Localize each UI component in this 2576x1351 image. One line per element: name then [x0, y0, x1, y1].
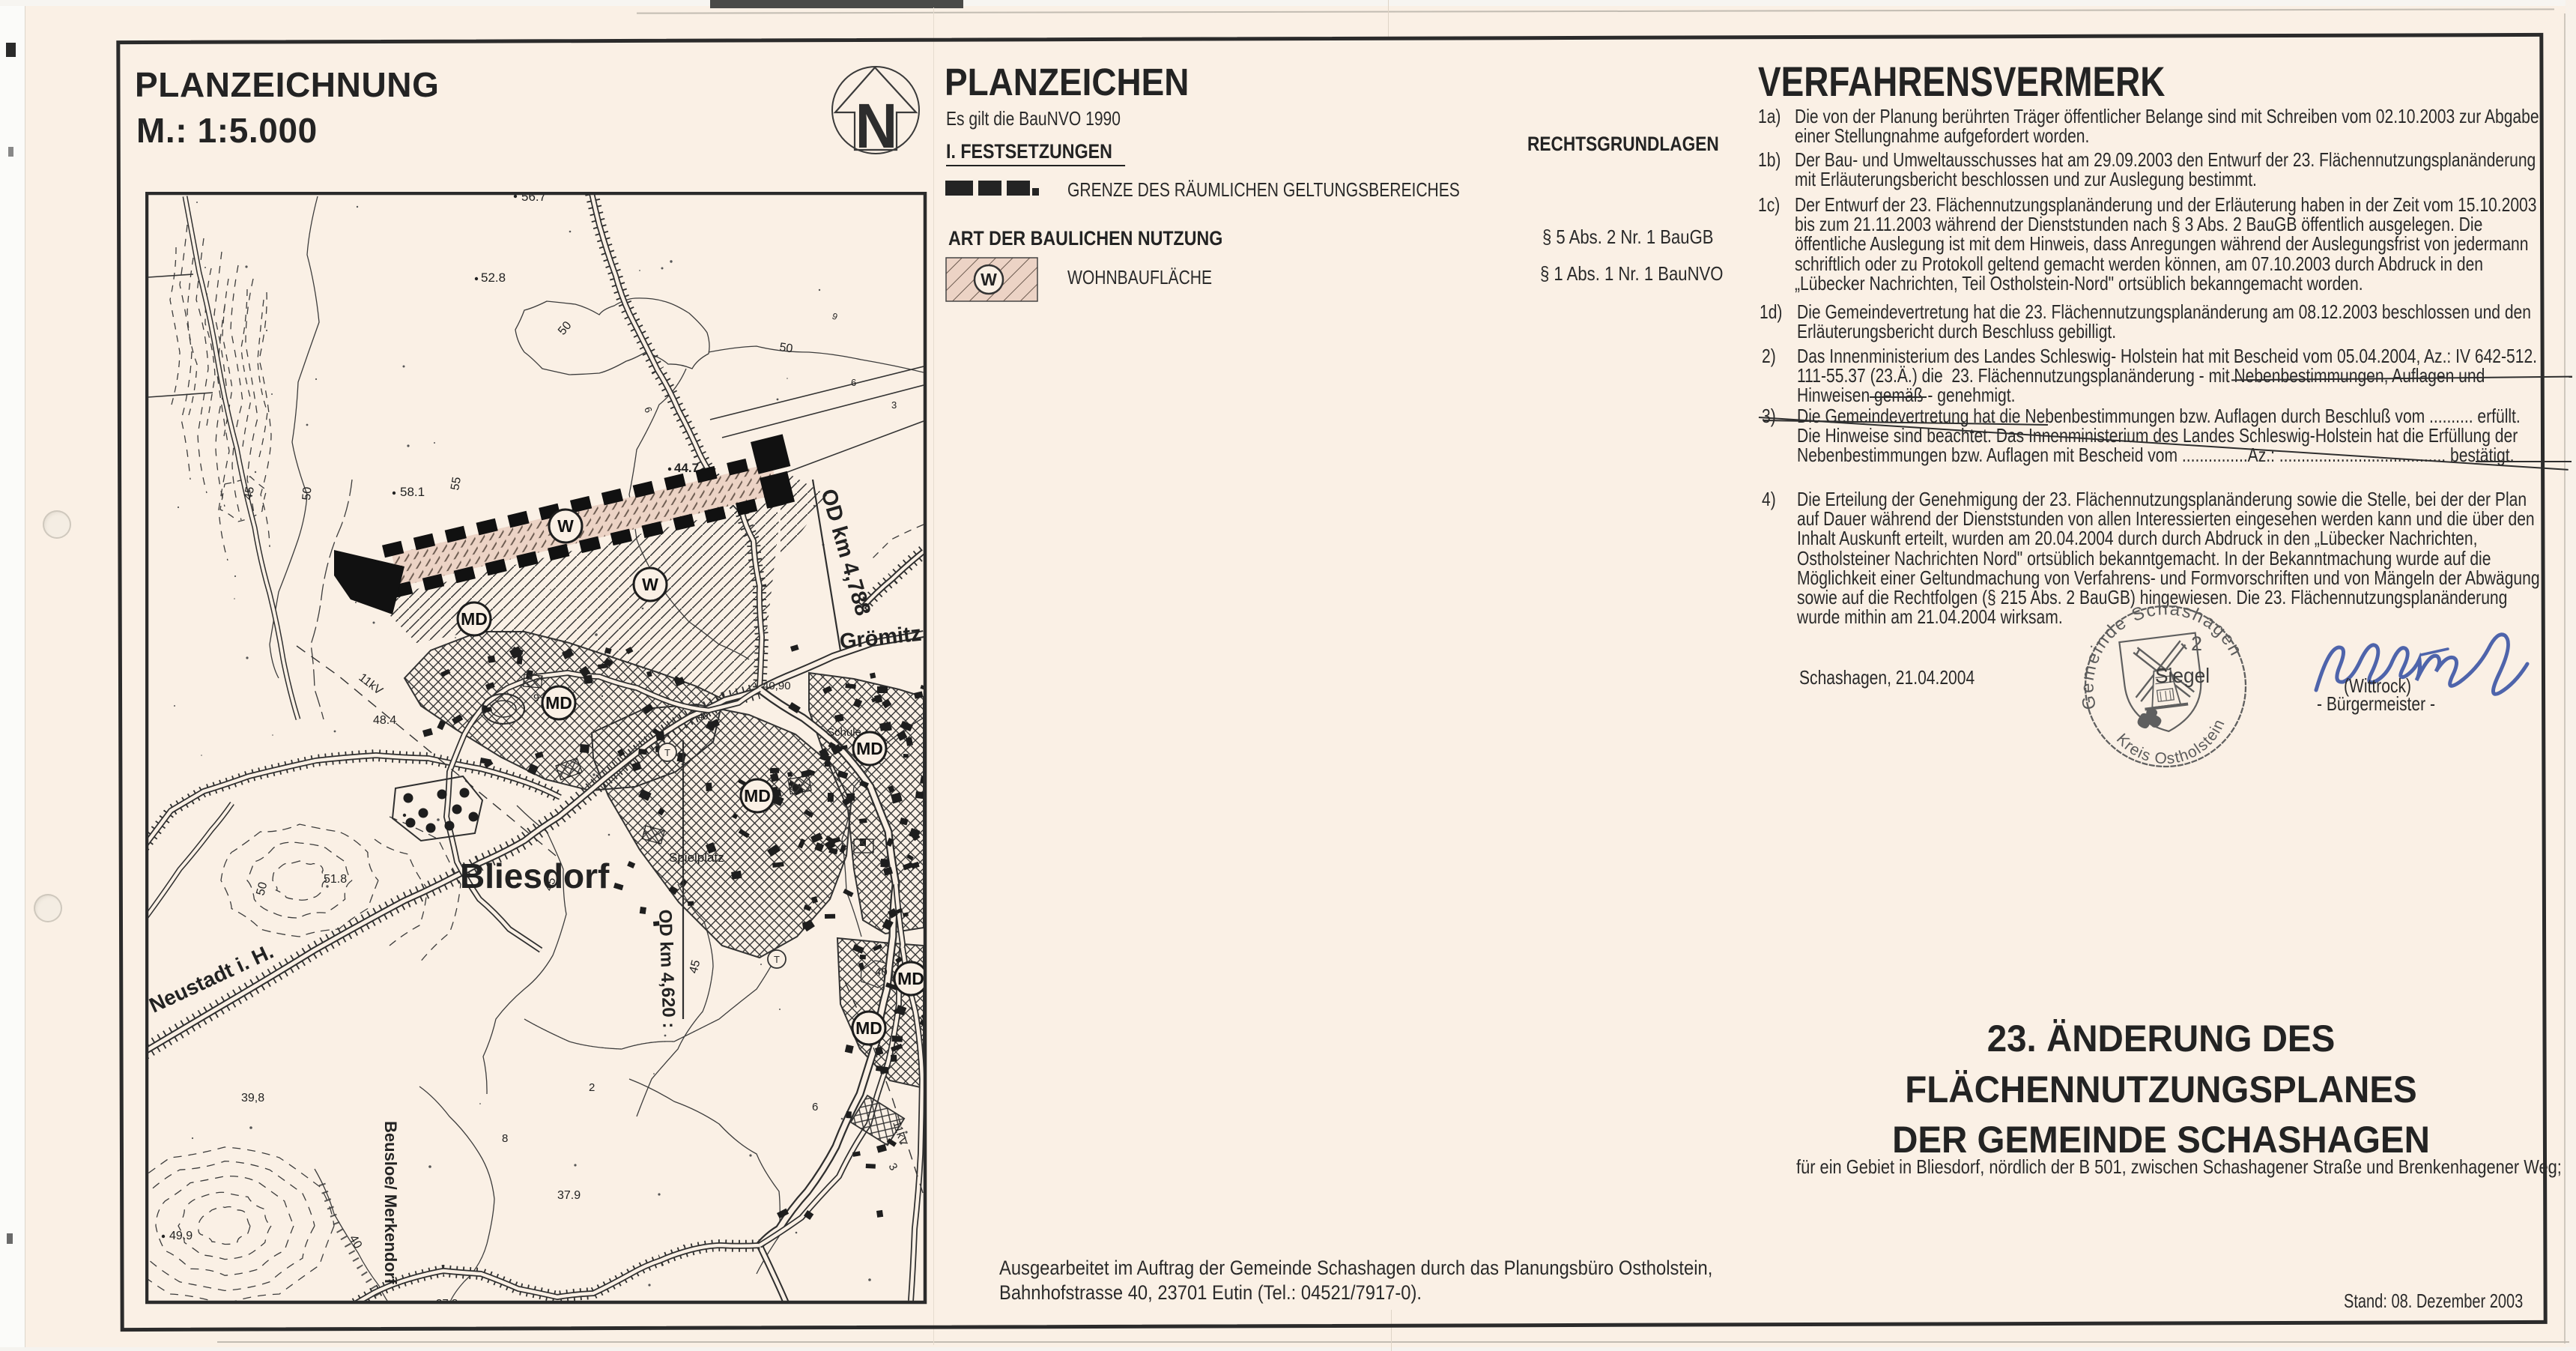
svg-text:MD: MD	[856, 739, 883, 758]
svg-text:T: T	[774, 954, 780, 965]
svg-text:50: 50	[254, 880, 270, 897]
svg-text:MD: MD	[545, 693, 572, 713]
svg-text:6: 6	[851, 377, 856, 388]
svg-text:8: 8	[502, 1132, 508, 1145]
svg-text:Bliesdorf: Bliesdorf	[460, 856, 610, 895]
svg-text:50: 50	[778, 341, 793, 355]
svg-text:W: W	[981, 270, 997, 289]
svg-text:Siegel: Siegel	[2155, 663, 2210, 687]
svg-text:9: 9	[533, 692, 539, 704]
svg-text:OD km 4,620 :: OD km 4,620 :	[655, 909, 679, 1029]
svg-text:Spielplatz: Spielplatz	[669, 850, 724, 865]
svg-text:51.8: 51.8	[324, 873, 347, 886]
svg-text:39,8: 39,8	[241, 1092, 264, 1104]
svg-text:50: 50	[556, 319, 575, 338]
svg-text:Grömitz: Grömitz	[838, 622, 922, 654]
svg-text:44.7: 44.7	[674, 461, 699, 475]
svg-text:45: 45	[242, 486, 257, 501]
svg-text:49.9: 49.9	[169, 1230, 193, 1242]
svg-text:45: 45	[687, 958, 703, 975]
svg-text:W: W	[642, 575, 658, 594]
svg-text:6: 6	[812, 1101, 818, 1113]
svg-text:3: 3	[886, 1161, 900, 1173]
svg-text:T: T	[664, 747, 670, 758]
svg-text:50: 50	[300, 486, 314, 501]
svg-text:9: 9	[831, 311, 839, 323]
svg-text:2: 2	[589, 1081, 595, 1094]
svg-text:40: 40	[875, 966, 888, 979]
svg-text:N: N	[855, 91, 897, 159]
svg-text:6: 6	[642, 405, 655, 414]
svg-text:40,90: 40,90	[763, 680, 791, 692]
svg-text:37.9: 37.9	[557, 1189, 581, 1202]
svg-text:W: W	[557, 516, 574, 536]
svg-text:Kreis Ostholstein: Kreis Ostholstein	[2113, 716, 2228, 768]
svg-text:Beusloe/ Merkendorf: Beusloe/ Merkendorf	[381, 1121, 400, 1284]
svg-text:40: 40	[698, 711, 709, 722]
svg-text:58.1: 58.1	[400, 485, 425, 499]
svg-text:MD: MD	[461, 609, 488, 629]
svg-text:52.8: 52.8	[481, 270, 506, 285]
svg-text:3: 3	[891, 399, 897, 411]
svg-text:Schule: Schule	[827, 726, 861, 739]
svg-text:40: 40	[347, 1233, 365, 1251]
svg-text:48.4: 48.4	[373, 714, 396, 727]
svg-text:55: 55	[449, 476, 464, 492]
svg-text:MD: MD	[744, 786, 771, 806]
svg-text:MD: MD	[855, 1018, 882, 1038]
svg-text:MD: MD	[897, 969, 924, 988]
